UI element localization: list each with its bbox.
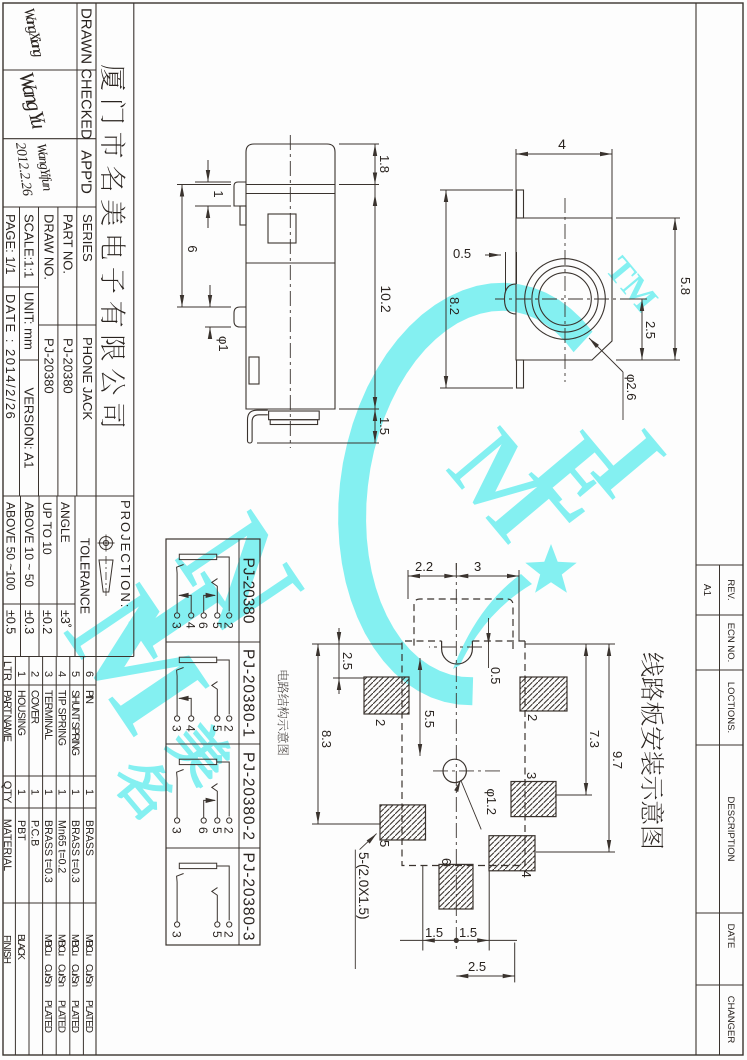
- svg-text:PART NO.: PART NO.: [61, 214, 76, 274]
- svg-text:TERMINAL: TERMINAL: [42, 690, 54, 740]
- svg-text:1: 1: [28, 789, 40, 795]
- svg-text:0.5: 0.5: [453, 246, 471, 261]
- svg-text:ABOVE 10 ~ 50: ABOVE 10 ~ 50: [22, 502, 36, 587]
- svg-text:φ2.6: φ2.6: [624, 374, 639, 401]
- svg-text:1: 1: [42, 789, 54, 795]
- svg-text:6: 6: [185, 245, 200, 252]
- svg-text:3: 3: [170, 827, 184, 834]
- svg-text:COVER: COVER: [28, 690, 40, 724]
- svg-text:A1: A1: [701, 584, 712, 597]
- svg-text:PJ-20380-3: PJ-20380-3: [240, 853, 257, 941]
- svg-text:PART NAME: PART NAME: [1, 690, 13, 742]
- svg-text:PIN: PIN: [83, 690, 95, 704]
- svg-text:6: 6: [439, 858, 454, 865]
- svg-text:3: 3: [474, 559, 481, 574]
- svg-text:5.5: 5.5: [422, 710, 437, 728]
- svg-text:PLATED: PLATED: [42, 1000, 53, 1033]
- svg-text:REV.: REV.: [725, 579, 736, 600]
- svg-text:PJ-20380: PJ-20380: [42, 338, 57, 394]
- svg-text:ABOVE 50 ~100: ABOVE 50 ~100: [4, 502, 18, 591]
- svg-text:CHANGER: CHANGER: [725, 996, 736, 1044]
- svg-text:Mn65 t=0.2: Mn65 t=0.2: [56, 820, 68, 873]
- svg-text:±3˚: ±3˚: [58, 610, 72, 628]
- svg-text:PLATED: PLATED: [56, 1000, 67, 1033]
- svg-text:1.8: 1.8: [377, 155, 392, 173]
- svg-text:2.5: 2.5: [643, 321, 658, 339]
- svg-text:PJ-20380-1: PJ-20380-1: [240, 649, 257, 737]
- svg-text:MB:Cu: MB:Cu: [56, 934, 67, 956]
- svg-text:HOUSING: HOUSING: [15, 690, 27, 736]
- svg-text:φ1: φ1: [216, 336, 231, 352]
- svg-text:5: 5: [210, 931, 224, 938]
- svg-text:2: 2: [373, 719, 388, 726]
- svg-text:BRASS t=0.3: BRASS t=0.3: [69, 820, 81, 883]
- svg-text:WangYifun: WangYifun: [34, 142, 56, 192]
- svg-text:2: 2: [525, 714, 540, 721]
- svg-text:APP'D: APP'D: [78, 150, 95, 194]
- svg-text:ANGLE: ANGLE: [58, 502, 72, 543]
- svg-text:Wang Xiang: Wang Xiang: [20, 7, 46, 60]
- svg-text:6: 6: [196, 827, 210, 834]
- svg-text:Cu/Sn: Cu/Sn: [69, 964, 80, 987]
- svg-text:LTR: LTR: [1, 661, 13, 681]
- svg-text:P.C.B: P.C.B: [28, 820, 40, 846]
- svg-text:DATE : 2014/2/26: DATE : 2014/2/26: [3, 294, 18, 420]
- svg-text:6: 6: [196, 622, 210, 629]
- svg-text:DATE: DATE: [725, 924, 736, 949]
- svg-text:VERSION: A1: VERSION: A1: [22, 388, 37, 469]
- svg-text:1.5: 1.5: [377, 417, 392, 435]
- svg-text:1: 1: [211, 190, 226, 197]
- svg-text:1: 1: [56, 789, 68, 795]
- svg-text:7.3: 7.3: [587, 730, 602, 748]
- svg-text:CHECKED: CHECKED: [78, 69, 94, 140]
- svg-text:2.5: 2.5: [340, 652, 355, 670]
- svg-text:SCALE:1:1: SCALE:1:1: [22, 214, 37, 278]
- svg-text:5: 5: [69, 671, 81, 677]
- svg-text:PLATED: PLATED: [83, 1000, 94, 1033]
- svg-text:PLATED: PLATED: [69, 1000, 80, 1033]
- svg-text:±0.2: ±0.2: [40, 610, 54, 634]
- svg-text:±0.3: ±0.3: [22, 610, 36, 634]
- svg-text:1: 1: [15, 671, 27, 677]
- svg-text:0.5: 0.5: [488, 667, 502, 684]
- svg-text:BLACK: BLACK: [15, 934, 26, 960]
- svg-text:SHUNT SPRING: SHUNT SPRING: [69, 690, 81, 756]
- svg-text:1: 1: [83, 789, 95, 795]
- svg-text:1: 1: [69, 789, 81, 795]
- svg-text:4: 4: [519, 871, 534, 878]
- svg-text:4: 4: [56, 671, 68, 677]
- svg-text:5: 5: [210, 827, 224, 834]
- svg-text:MB:Cu: MB:Cu: [83, 934, 94, 956]
- svg-text:2012.2.26: 2012.2.26: [12, 141, 34, 197]
- svg-text:Cu/Sn: Cu/Sn: [42, 964, 53, 987]
- svg-text:DRAW NO.: DRAW NO.: [42, 214, 57, 280]
- svg-text:5.8: 5.8: [678, 277, 693, 295]
- svg-text:4: 4: [184, 725, 198, 732]
- svg-text:5: 5: [377, 840, 392, 847]
- svg-text:MB:Cu: MB:Cu: [69, 934, 80, 956]
- svg-text:3: 3: [524, 772, 539, 779]
- svg-text:PJ-20380: PJ-20380: [240, 558, 257, 624]
- svg-text:9.7: 9.7: [610, 751, 625, 769]
- svg-text:1.5: 1.5: [425, 925, 443, 940]
- svg-text:8.2: 8.2: [447, 297, 462, 315]
- svg-text:2: 2: [28, 671, 40, 677]
- svg-text:PAGE: 1/1: PAGE: 1/1: [3, 214, 18, 274]
- svg-text:BRASS t=0.3: BRASS t=0.3: [42, 820, 54, 883]
- svg-text:3: 3: [170, 622, 184, 629]
- svg-text:TIP SPRING: TIP SPRING: [56, 690, 68, 746]
- svg-text:1.5: 1.5: [459, 925, 477, 940]
- svg-text:Cu/Sn: Cu/Sn: [56, 964, 67, 987]
- svg-text:QTY: QTY: [1, 781, 13, 804]
- svg-text:5: 5: [210, 725, 224, 732]
- svg-text:φ1.2: φ1.2: [484, 789, 499, 816]
- svg-text:TM: TM: [598, 249, 666, 319]
- svg-text:TOLERANCE: TOLERANCE: [78, 538, 92, 614]
- svg-text:DESCRIPTION: DESCRIPTION: [725, 797, 736, 862]
- svg-text:5-(2.0X1.5): 5-(2.0X1.5): [356, 852, 371, 920]
- svg-text:±0.5: ±0.5: [4, 610, 18, 634]
- svg-text:4: 4: [184, 622, 198, 629]
- svg-text:MB:Cu: MB:Cu: [42, 934, 53, 956]
- svg-text:4: 4: [558, 136, 566, 152]
- svg-text:5: 5: [210, 622, 224, 629]
- svg-text:6: 6: [83, 671, 95, 677]
- svg-text:LOCTIONS.: LOCTIONS.: [725, 682, 736, 733]
- svg-text:Cu/Sn: Cu/Sn: [83, 964, 94, 987]
- svg-text:2.5: 2.5: [468, 959, 486, 974]
- svg-text:2.2: 2.2: [415, 559, 433, 574]
- svg-text:8.3: 8.3: [319, 730, 334, 748]
- svg-text:BRASS: BRASS: [83, 820, 95, 856]
- svg-text:DRAWN: DRAWN: [78, 8, 95, 64]
- svg-text:10.2: 10.2: [378, 285, 394, 312]
- svg-text:PBT: PBT: [15, 820, 27, 841]
- svg-text:PROJECTION:: PROJECTION:: [118, 500, 133, 609]
- svg-text:1: 1: [15, 789, 27, 795]
- svg-text:PJ-20380-2: PJ-20380-2: [240, 752, 257, 840]
- svg-text:PHONE JACK: PHONE JACK: [80, 337, 95, 420]
- svg-text:3: 3: [170, 931, 184, 938]
- svg-text:FINISH: FINISH: [1, 935, 12, 964]
- svg-text:UNIT: mm: UNIT: mm: [22, 292, 37, 350]
- svg-text:PJ-20380: PJ-20380: [61, 338, 76, 394]
- svg-text:3: 3: [42, 671, 54, 677]
- svg-text:MATERIAL: MATERIAL: [1, 819, 13, 871]
- svg-text:SERIES: SERIES: [80, 214, 95, 262]
- svg-text:Wang Yu: Wang Yu: [14, 69, 51, 131]
- svg-text:UP TO 10: UP TO 10: [40, 502, 54, 555]
- svg-text:3: 3: [170, 725, 184, 732]
- svg-text:ECN NO.: ECN NO.: [725, 623, 736, 663]
